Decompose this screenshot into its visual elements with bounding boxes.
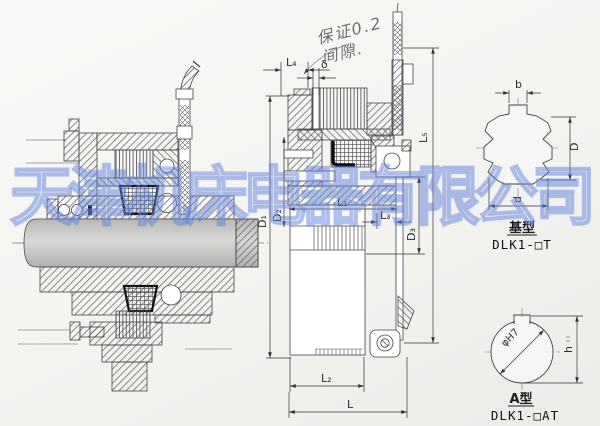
- friction-disc-pack: [312, 88, 367, 129]
- drawing-sheet: L₄ δ L₅ L₁ L₃ D₁ D₂ D₃ L₂ L b D d 基型: [0, 0, 600, 426]
- bolt-head: [69, 119, 79, 131]
- clutch-drawing-svg: L₄ δ L₅ L₁ L₃ D₁ D₂ D₃ L₂ L b D d 基型: [0, 0, 600, 426]
- flexible-conduit: [176, 61, 200, 214]
- dim-l5-label: L₅: [417, 132, 430, 143]
- basic-type-model: DLK1-□T: [492, 237, 552, 252]
- dim-small-d-label: d: [511, 196, 524, 203]
- bearing-ball: [160, 159, 174, 173]
- middle-section-view: L₄ δ L₅ L₁ L₃ D₁ D₂ D₃ L₂ L: [256, 3, 439, 418]
- stud-screw: [284, 171, 335, 181]
- a-type-model: DLK1-□AT: [491, 408, 559, 423]
- conduit-clamp: [176, 89, 193, 99]
- shaft-section-hatch: [236, 219, 258, 267]
- clutch-upper-section: [47, 119, 234, 219]
- conduit-clamp: [177, 126, 192, 139]
- friction-disc-pack: [115, 150, 153, 178]
- a-type-view: φH7 h A型 DLK1-□AT: [485, 308, 583, 423]
- bearing-ball: [161, 285, 181, 305]
- air-gap: [313, 88, 319, 129]
- dim-l3-label: L₃: [380, 209, 391, 222]
- hub-sleeve: [58, 196, 234, 219]
- dim-h-label: h: [562, 346, 575, 353]
- bolt-head: [70, 322, 80, 340]
- basic-type-title: 基型: [508, 220, 535, 236]
- dim-l2-label: L₂: [321, 372, 332, 385]
- dim-d2-label: D₂: [271, 209, 284, 222]
- clutch-lower-section: [40, 267, 234, 391]
- left-assembly-view: [12, 61, 268, 391]
- bolt: [64, 131, 79, 161]
- dim-l1-label: L₁: [337, 196, 348, 209]
- seal: [88, 205, 92, 215]
- dim-d3-label: D₃: [405, 228, 418, 241]
- a-type-title: A型: [509, 391, 532, 407]
- section-body: [284, 60, 414, 357]
- dim-l-label: L: [347, 398, 354, 411]
- dim-b-label: b: [515, 78, 522, 91]
- spline-profile: [484, 105, 552, 184]
- dim-l4-label: L₄: [286, 56, 297, 69]
- coil: [331, 140, 371, 167]
- dim-d1-label: D₁: [256, 215, 269, 228]
- stud-screw: [284, 150, 313, 158]
- terminal-cone: [398, 296, 414, 329]
- wire-terminal-tab: [402, 64, 413, 84]
- shaft: [24, 219, 258, 267]
- bolt: [80, 327, 104, 337]
- basic-type-view: b D d 基型 DLK1-□T: [476, 78, 581, 252]
- dim-big-d-label: D: [568, 143, 581, 151]
- bearing-ball: [384, 153, 400, 169]
- coil-lower: [124, 286, 157, 311]
